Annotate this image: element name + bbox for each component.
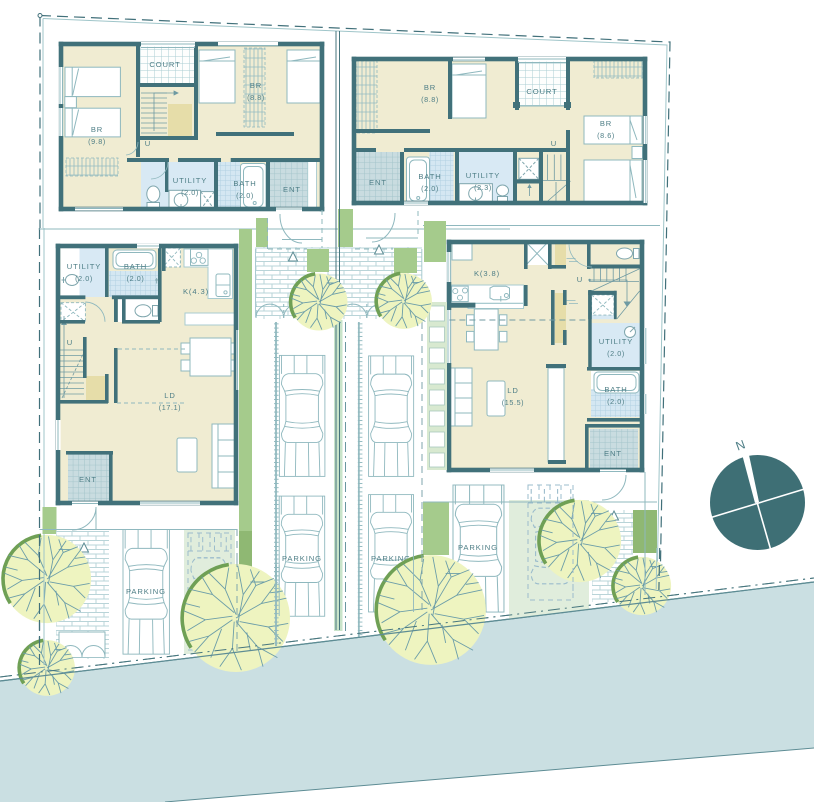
- svg-text:(2.0): (2.0): [127, 274, 145, 283]
- svg-text:LD: LD: [164, 391, 176, 400]
- svg-text:ENT: ENT: [369, 178, 387, 187]
- svg-text:(2.0): (2.0): [607, 397, 625, 406]
- svg-text:(2.0): (2.0): [181, 188, 199, 197]
- svg-text:ENT: ENT: [604, 449, 622, 458]
- svg-text:(17.1): (17.1): [159, 403, 181, 412]
- svg-text:(2.0): (2.0): [421, 184, 439, 193]
- svg-text:UTILITY: UTILITY: [466, 171, 501, 180]
- svg-text:K(3.8): K(3.8): [474, 269, 500, 278]
- svg-text:BATH: BATH: [233, 179, 256, 188]
- svg-text:(8.8): (8.8): [421, 95, 439, 104]
- svg-text:BR: BR: [91, 125, 103, 134]
- svg-text:U: U: [145, 139, 151, 148]
- svg-text:U: U: [577, 275, 583, 284]
- svg-text:K(4.3): K(4.3): [183, 287, 209, 296]
- svg-text:BATH: BATH: [604, 385, 627, 394]
- svg-text:PARKING: PARKING: [282, 554, 322, 563]
- svg-text:BATH: BATH: [418, 172, 441, 181]
- svg-text:(2.0): (2.0): [607, 349, 625, 358]
- svg-text:UTILITY: UTILITY: [599, 337, 634, 346]
- svg-text:(8.6): (8.6): [597, 131, 615, 140]
- svg-text:PARKING: PARKING: [126, 587, 166, 596]
- svg-text:LD: LD: [507, 386, 519, 395]
- svg-text:(2.0): (2.0): [75, 274, 93, 283]
- svg-text:(2.0): (2.0): [236, 191, 254, 200]
- svg-text:ENT: ENT: [283, 185, 301, 194]
- svg-text:ENT: ENT: [79, 475, 97, 484]
- svg-text:(8.8): (8.8): [247, 93, 265, 102]
- svg-text:UTILITY: UTILITY: [173, 176, 208, 185]
- svg-text:BR: BR: [250, 81, 262, 90]
- svg-text:U: U: [67, 338, 73, 347]
- svg-text:(9.8): (9.8): [88, 137, 106, 146]
- svg-text:PARKING: PARKING: [458, 543, 498, 552]
- svg-text:UTILITY: UTILITY: [67, 262, 102, 271]
- svg-text:BR: BR: [600, 119, 612, 128]
- svg-text:BR: BR: [424, 83, 436, 92]
- svg-text:COURT: COURT: [149, 60, 180, 69]
- svg-text:BATH: BATH: [124, 262, 147, 271]
- svg-text:U: U: [551, 139, 557, 148]
- svg-text:COURT: COURT: [526, 87, 557, 96]
- svg-text:(15.5): (15.5): [502, 398, 524, 407]
- svg-text:(2.3): (2.3): [474, 183, 492, 192]
